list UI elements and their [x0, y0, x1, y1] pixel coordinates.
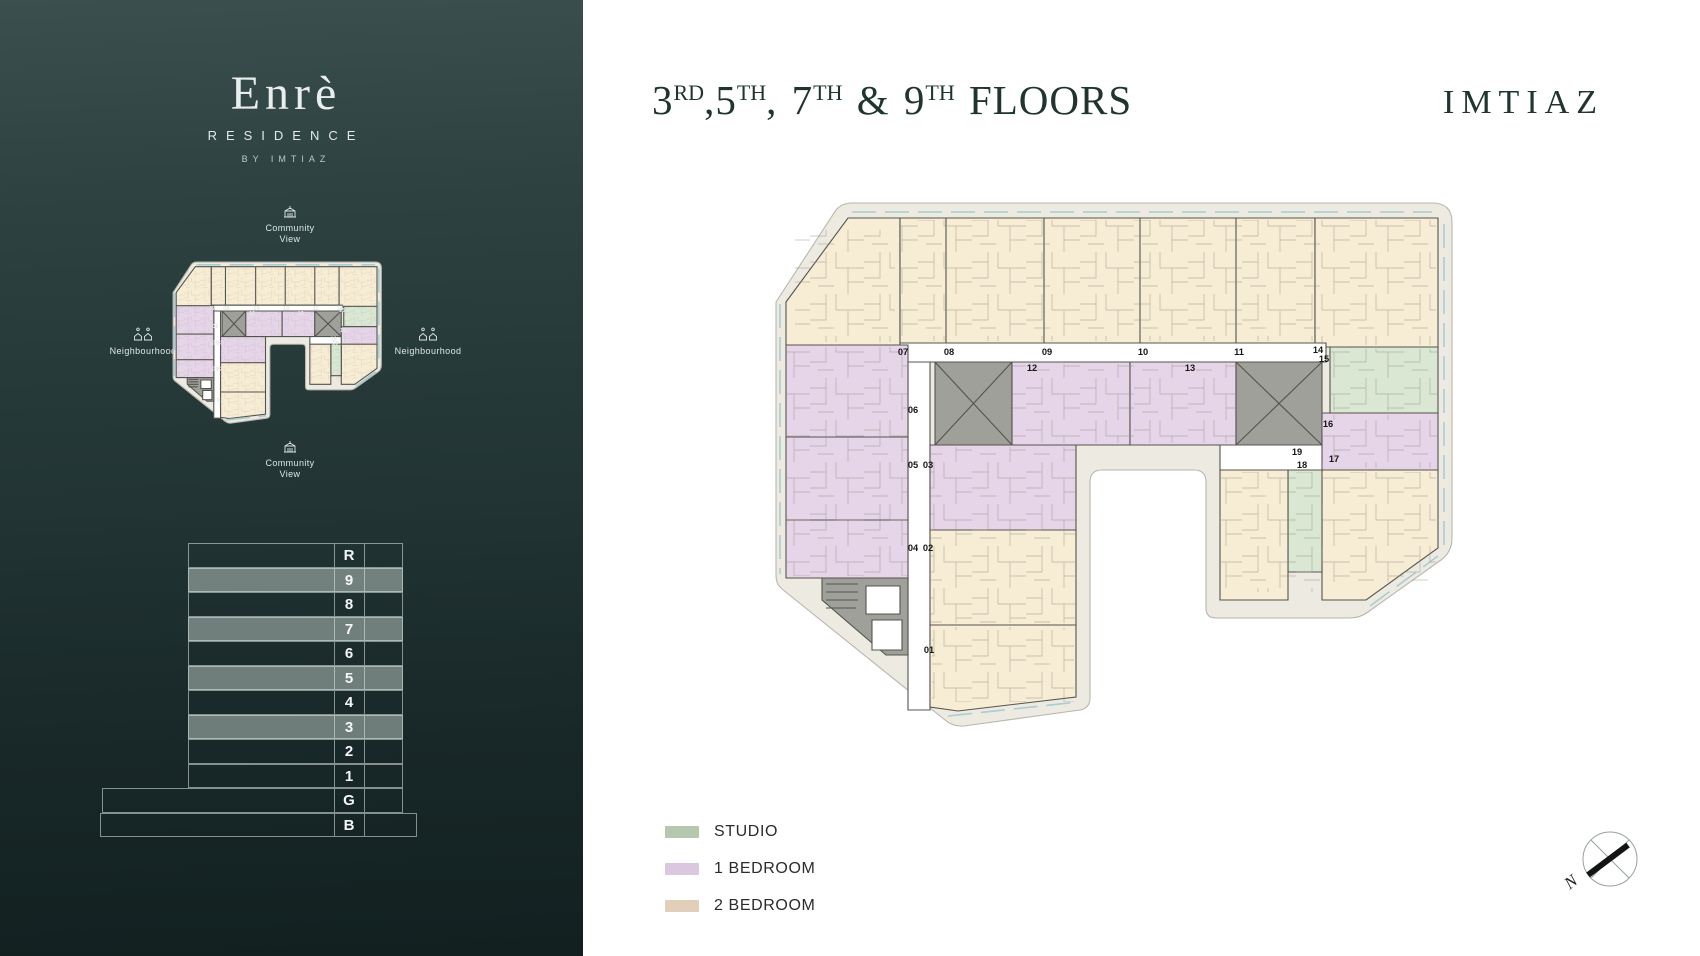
unit-label-19[interactable]: 19 [1292, 447, 1302, 457]
compass: N [1560, 832, 1637, 893]
mini-unit-label-17: 17 [342, 339, 348, 345]
mini-unit-label-11: 11 [313, 306, 319, 312]
mini-unit-label-08: 08 [223, 306, 229, 312]
unit-label-16[interactable]: 16 [1323, 419, 1333, 429]
unit-label-11[interactable]: 11 [1234, 347, 1244, 357]
mini-unit-label-01: 01 [217, 398, 223, 404]
mini-unit-label-06: 06 [212, 324, 218, 330]
mini-unit-label-19: 19 [330, 337, 336, 343]
unit-label-07[interactable]: 07 [898, 347, 908, 357]
mini-unit-label-05: 05 [212, 341, 218, 347]
mini-site-map [173, 262, 381, 423]
unit-label-06[interactable]: 06 [908, 405, 918, 415]
unit-label-18[interactable]: 18 [1297, 460, 1307, 470]
unit-label-12[interactable]: 12 [1027, 363, 1037, 373]
page: Enrè RESIDENCE BY IMTIAZ Community View [0, 0, 1700, 956]
mini-unit-label-13: 13 [298, 311, 304, 317]
unit-label-05[interactable]: 05 [908, 460, 918, 470]
unit-label-02[interactable]: 02 [923, 543, 933, 553]
mini-unit-label-10: 10 [283, 306, 289, 312]
compass-north-label: N [1560, 870, 1583, 894]
unit-label-10[interactable]: 10 [1138, 347, 1148, 357]
mini-unit-label-16: 16 [340, 328, 346, 334]
unit-label-04[interactable]: 04 [908, 543, 919, 553]
mini-unit-label-07: 07 [209, 306, 215, 312]
unit-label-13[interactable]: 13 [1185, 363, 1195, 373]
unit-label-03[interactable]: 03 [923, 460, 933, 470]
unit-label-09[interactable]: 09 [1042, 347, 1052, 357]
mini-unit-label-12: 12 [249, 311, 255, 317]
building-floor-plan [776, 203, 1452, 726]
unit-label-15[interactable]: 15 [1319, 354, 1329, 364]
unit-label-17[interactable]: 17 [1329, 454, 1339, 464]
floor-plan-canvas: 01020304050607080910111213141516171819 0… [0, 0, 1700, 956]
unit-label-08[interactable]: 08 [944, 347, 954, 357]
mini-unit-label-04: 04 [212, 366, 219, 372]
mini-unit-label-15: 15 [339, 308, 345, 314]
unit-label-01[interactable]: 01 [924, 645, 934, 655]
